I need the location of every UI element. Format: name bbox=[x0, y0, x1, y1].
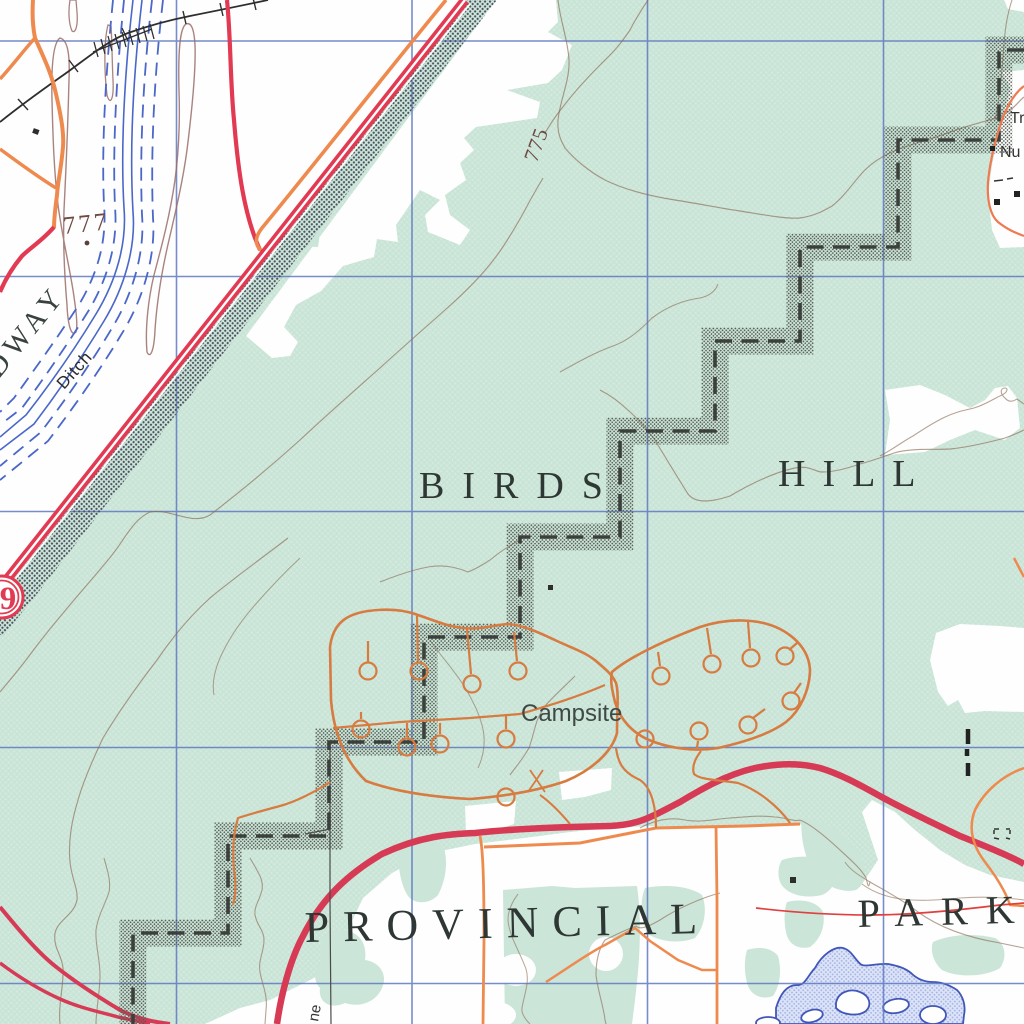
svg-text:777: 777 bbox=[62, 208, 111, 240]
svg-text:Campsite: Campsite bbox=[521, 700, 622, 727]
svg-text:Nu: Nu bbox=[1000, 144, 1020, 161]
svg-text:Tr: Tr bbox=[1010, 110, 1024, 127]
svg-text:ne: ne bbox=[305, 1003, 325, 1022]
svg-text:BIRDS: BIRDS bbox=[419, 465, 621, 507]
svg-text:HILL: HILL bbox=[778, 453, 933, 495]
svg-text:PARK: PARK bbox=[857, 886, 1024, 936]
svg-text:9: 9 bbox=[0, 581, 16, 617]
svg-text:PROVINCIAL: PROVINCIAL bbox=[304, 894, 711, 952]
